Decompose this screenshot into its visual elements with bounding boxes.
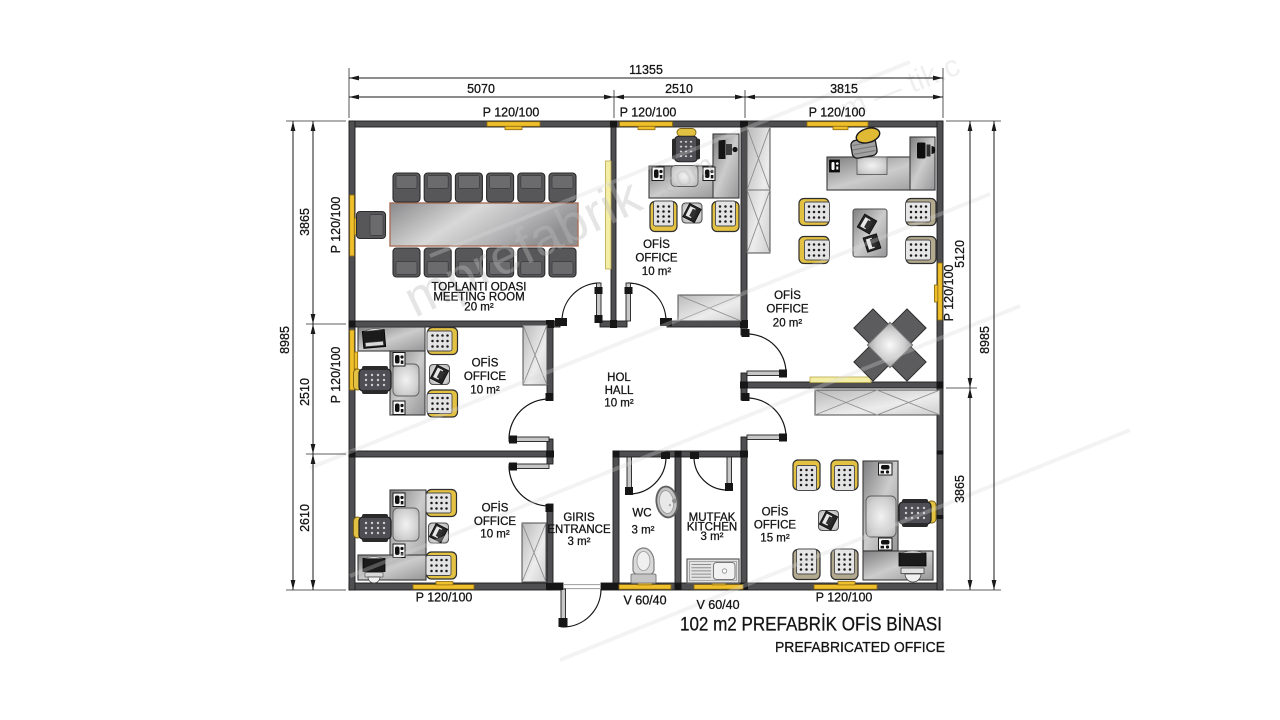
svg-text:OFFICE: OFFICE — [474, 516, 516, 528]
svg-text:3815: 3815 — [830, 82, 858, 96]
svg-text:3 m²: 3 m² — [701, 531, 724, 543]
svg-text:GIRIS: GIRIS — [563, 512, 595, 524]
svg-text:OFFICE: OFFICE — [635, 253, 677, 265]
svg-text:10 m²: 10 m² — [642, 266, 672, 278]
svg-text:V 60/40: V 60/40 — [696, 598, 739, 612]
svg-text:OFFICE: OFFICE — [464, 371, 506, 383]
svg-text:P 120/100: P 120/100 — [329, 197, 343, 254]
svg-text:P 120/100: P 120/100 — [816, 591, 873, 605]
svg-text:P 120/100: P 120/100 — [416, 591, 473, 605]
svg-text:5070: 5070 — [467, 82, 495, 96]
svg-text:OFİS: OFİS — [774, 289, 801, 302]
svg-text:5120: 5120 — [953, 240, 967, 268]
svg-text:3865: 3865 — [298, 208, 312, 236]
svg-text:3865: 3865 — [953, 475, 967, 503]
svg-text:OFİS: OFİS — [643, 238, 670, 251]
svg-text:V 60/40: V 60/40 — [623, 594, 666, 608]
svg-text:15 m²: 15 m² — [760, 533, 790, 545]
svg-text:3 m²: 3 m² — [568, 536, 591, 548]
svg-text:OFFICE: OFFICE — [754, 520, 796, 532]
svg-text:HOL: HOL — [607, 372, 631, 384]
svg-text:20 m²: 20 m² — [464, 302, 494, 314]
svg-text:HALL: HALL — [605, 385, 634, 397]
svg-text:PREFABRICATED OFFICE: PREFABRICATED OFFICE — [775, 640, 945, 656]
svg-text:P 120/100: P 120/100 — [483, 106, 540, 120]
svg-text:10 m²: 10 m² — [604, 398, 634, 410]
svg-text:OFFICE: OFFICE — [766, 304, 808, 316]
svg-text:3 m²: 3 m² — [632, 524, 655, 536]
svg-text:OFİS: OFİS — [482, 502, 509, 515]
svg-text:102 m2 PREFABRİK OFİS BİNASI: 102 m2 PREFABRİK OFİS BİNASI — [680, 615, 942, 636]
svg-text:2510: 2510 — [665, 82, 693, 96]
svg-text:8985: 8985 — [278, 326, 292, 354]
svg-text:P 120/100: P 120/100 — [942, 265, 956, 322]
svg-text:P 120/100: P 120/100 — [329, 347, 343, 404]
svg-text:P 120/100: P 120/100 — [620, 106, 677, 120]
svg-text:10 m²: 10 m² — [480, 529, 510, 541]
svg-text:ENTRANCE: ENTRANCE — [547, 524, 611, 536]
svg-text:OFİS: OFİS — [472, 357, 499, 370]
svg-text:11355: 11355 — [629, 63, 663, 77]
svg-text:2510: 2510 — [298, 378, 312, 406]
svg-text:20 m²: 20 m² — [773, 318, 803, 330]
svg-text:10 m²: 10 m² — [470, 385, 500, 397]
svg-text:OFİS: OFİS — [762, 506, 789, 519]
svg-text:8985: 8985 — [978, 326, 992, 354]
svg-text:P 120/100: P 120/100 — [809, 106, 866, 120]
svg-text:WC: WC — [632, 508, 651, 520]
svg-text:2610: 2610 — [298, 504, 312, 532]
